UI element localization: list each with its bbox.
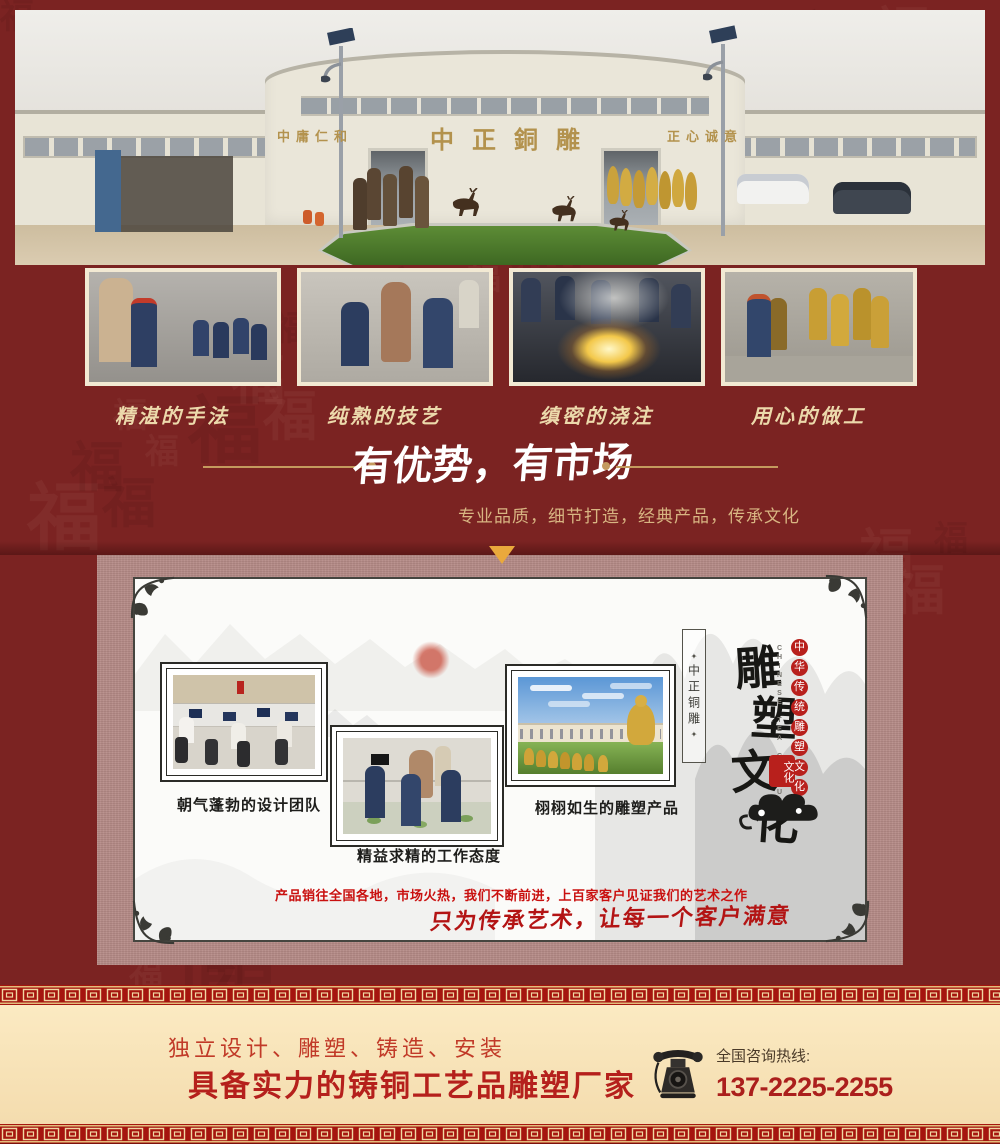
clay-statue bbox=[409, 750, 433, 798]
deer-sculpture-icon bbox=[447, 188, 487, 218]
molten-metal-glow bbox=[557, 318, 661, 380]
large-gold-buddha bbox=[627, 703, 655, 745]
advantage-subtitle: 专业品质，细节打造，经典产品，传承文化 bbox=[458, 502, 800, 527]
process-item: 纯熟的技艺 bbox=[297, 268, 493, 429]
framed-photo-design-team bbox=[160, 662, 328, 782]
deer-sculpture-icon bbox=[605, 210, 635, 232]
corner-flourish-icon bbox=[824, 899, 870, 945]
process-item: 精湛的手法 bbox=[85, 268, 281, 429]
corner-flourish-icon bbox=[824, 574, 870, 620]
worker-group bbox=[365, 766, 385, 818]
office-wall bbox=[173, 675, 315, 703]
process-photo-sculpting bbox=[85, 268, 281, 386]
footer-banner: 独立设计、雕塑、铸造、安装 具备实力的铸铜工艺品雕塑厂家 全国咨询热线: 137… bbox=[0, 1005, 1000, 1124]
building-sign-right: 正心诚意 bbox=[667, 126, 743, 145]
footer-headline: 具备实力的铸铜工艺品雕塑厂家 bbox=[188, 1061, 636, 1105]
office-chairs bbox=[175, 737, 188, 763]
telephone-icon bbox=[650, 1041, 706, 1101]
circle-char: 塑 bbox=[791, 739, 808, 756]
blue-tarp bbox=[95, 150, 121, 232]
clay-statue bbox=[381, 282, 411, 362]
process-caption: 缜密的浇注 bbox=[509, 400, 705, 429]
process-item: 缜密的浇注 bbox=[509, 268, 705, 429]
gold-statues bbox=[809, 288, 827, 340]
hotline-number: 137-2225-2255 bbox=[716, 1072, 893, 1103]
lawn bbox=[518, 742, 663, 774]
gold-buddha-row bbox=[607, 166, 619, 204]
circle-char: 统 bbox=[791, 699, 808, 716]
auspicious-cloud-icon bbox=[738, 783, 836, 833]
video-camera bbox=[371, 754, 389, 765]
process-photo-polishing bbox=[721, 268, 917, 386]
advantage-title: 有优势，有市场 bbox=[325, 429, 661, 493]
vertical-seal-bar: 中正铜雕 bbox=[682, 629, 706, 763]
worker-group bbox=[193, 320, 209, 356]
window-strip bbox=[23, 136, 275, 158]
corner-flourish-icon bbox=[130, 899, 176, 945]
circle-char: 雕 bbox=[791, 719, 808, 736]
red-seal-stamp: 文化 bbox=[769, 755, 795, 787]
plaster-statue bbox=[435, 746, 451, 786]
gold-buddha-row bbox=[524, 748, 534, 765]
worker-figure bbox=[423, 298, 453, 368]
bronze-statue-cluster bbox=[367, 168, 381, 220]
seal-bar-text: 中正铜雕 bbox=[686, 664, 703, 728]
monitors bbox=[189, 709, 202, 718]
dark-car bbox=[833, 182, 911, 214]
worker-figure bbox=[131, 298, 157, 367]
circle-char: 华 bbox=[791, 659, 808, 676]
clerestory-windows bbox=[301, 96, 709, 116]
greek-key-border-top bbox=[0, 985, 1000, 1005]
office-photo bbox=[173, 675, 315, 769]
clouds bbox=[530, 685, 572, 691]
advantage-section: 有优势，有市场 专业品质，细节打造，经典产品，传承文化 bbox=[0, 430, 1000, 540]
white-car bbox=[737, 174, 809, 204]
card-photo-caption: 精益求精的工作态度 bbox=[357, 845, 501, 866]
factory-panorama-photo: 中正銅雕 中庸仁和 正心诚意 bbox=[15, 10, 985, 265]
outdoor-buddha-photo bbox=[518, 677, 663, 774]
process-caption: 用心的做工 bbox=[721, 400, 917, 429]
floor-stains bbox=[367, 817, 381, 824]
window-strip bbox=[725, 136, 977, 158]
divider-dot-right bbox=[602, 462, 610, 470]
footer-services: 独立设计、雕塑、铸造、安装 bbox=[168, 1031, 506, 1063]
workshop-floor bbox=[725, 356, 913, 382]
deer-sculpture-icon bbox=[547, 196, 583, 223]
hotline-block: 全国咨询热线: 137-2225-2255 bbox=[650, 1041, 893, 1103]
card-photo-caption: 栩栩如生的雕塑产品 bbox=[535, 797, 679, 818]
process-photo-strip: 精湛的手法 纯熟的技艺 缜密的浇注 用心 bbox=[85, 268, 915, 429]
divider-line-right bbox=[616, 466, 778, 468]
greek-key-border-bottom bbox=[0, 1124, 1000, 1144]
studio-photo bbox=[343, 738, 491, 834]
corner-flourish-icon bbox=[130, 574, 176, 620]
worker-group bbox=[521, 278, 541, 322]
process-caption: 纯熟的技艺 bbox=[297, 400, 493, 429]
culture-panel: 朝气蓬勃的设计团队 精益求精的工作态度 栩栩如生的雕塑产品 中正铜雕 雕 塑 文… bbox=[133, 577, 867, 942]
red-sun bbox=[412, 641, 450, 679]
building-sign-left: 中庸仁和 bbox=[277, 126, 353, 145]
clay-statue bbox=[99, 278, 133, 362]
worker-figure bbox=[747, 294, 771, 357]
culture-card: 朝气蓬勃的设计团队 精益求精的工作态度 栩栩如生的雕塑产品 中正铜雕 雕 塑 文… bbox=[97, 555, 903, 965]
dark-tarp bbox=[121, 156, 233, 232]
circle-char: 传 bbox=[791, 679, 808, 696]
process-caption: 精湛的手法 bbox=[85, 400, 281, 429]
worker-figure bbox=[341, 302, 369, 366]
orange-chairs bbox=[303, 210, 312, 224]
brush-slogan: 只为传承艺术，让每一个客户满意 bbox=[429, 898, 794, 936]
hotline-texts: 全国咨询热线: 137-2225-2255 bbox=[716, 1045, 893, 1103]
framed-photo-products bbox=[505, 664, 676, 787]
circle-char: 中 bbox=[791, 639, 808, 656]
process-photo-casting bbox=[509, 268, 705, 386]
office-logo bbox=[237, 681, 244, 694]
process-item: 用心的做工 bbox=[721, 268, 917, 429]
card-photo-caption: 朝气蓬勃的设计团队 bbox=[177, 794, 321, 815]
page: 福福福福福福福福福福福福福福福福福福福福福福福福福福福福福福福福福福福福福福福福… bbox=[0, 0, 1000, 1144]
plaster-statue bbox=[459, 280, 479, 328]
framed-photo-work-attitude bbox=[330, 725, 504, 847]
hotline-label: 全国咨询热线: bbox=[716, 1045, 893, 1066]
down-triangle-icon bbox=[489, 546, 515, 564]
factory-right-wing bbox=[717, 110, 985, 236]
process-photo-finishing bbox=[297, 268, 493, 386]
